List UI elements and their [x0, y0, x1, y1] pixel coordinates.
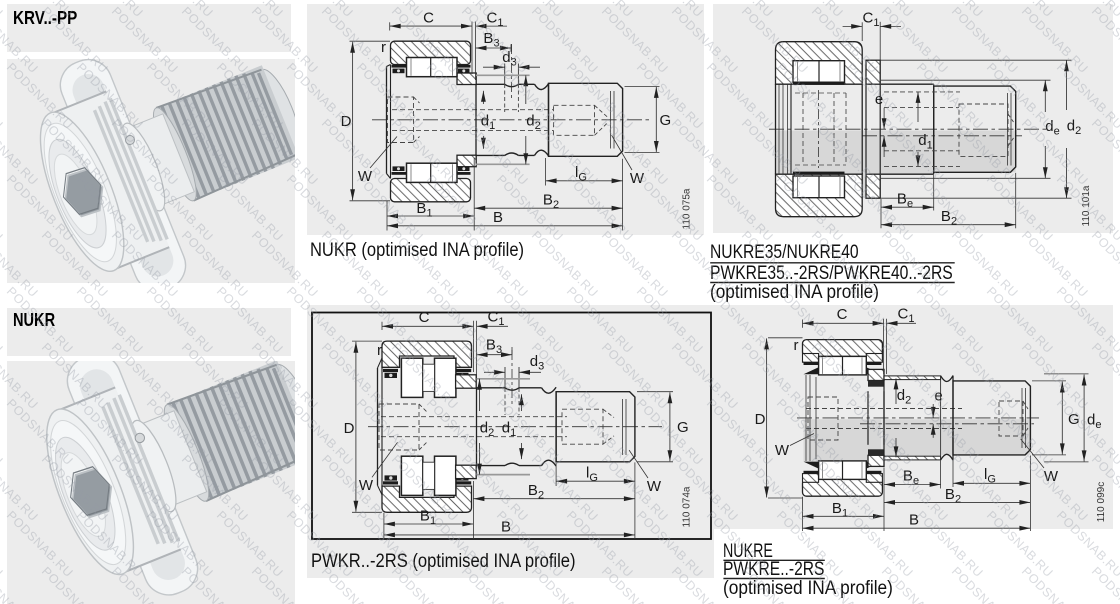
svg-text:de: de: [1087, 412, 1101, 432]
svg-text:r: r: [377, 342, 382, 359]
svg-text:C: C: [423, 10, 434, 27]
svg-text:r: r: [794, 337, 799, 354]
svg-text:B2: B2: [941, 208, 957, 228]
svg-text:G: G: [1068, 411, 1080, 428]
svg-text:e: e: [934, 388, 942, 405]
svg-text:d2: d2: [897, 387, 911, 407]
svg-text:r: r: [381, 39, 386, 56]
svg-text:110 074a: 110 074a: [682, 486, 693, 527]
svg-text:C1: C1: [863, 10, 880, 30]
svg-text:C: C: [837, 306, 848, 323]
svg-text:110 075a: 110 075a: [682, 188, 693, 229]
svg-text:d3: d3: [502, 49, 516, 69]
svg-text:B1: B1: [416, 200, 432, 220]
svg-text:Be: Be: [897, 191, 913, 211]
svg-text:B2: B2: [528, 482, 544, 502]
svg-text:C1: C1: [898, 306, 915, 326]
svg-text:d2: d2: [526, 112, 540, 131]
svg-text:d3: d3: [530, 353, 544, 373]
svg-text:W: W: [359, 477, 374, 494]
svg-text:d2: d2: [480, 420, 494, 440]
svg-text:G: G: [660, 112, 672, 129]
svg-text:B: B: [493, 209, 503, 226]
svg-text:D: D: [755, 411, 766, 428]
svg-text:W: W: [358, 168, 373, 185]
svg-text:B: B: [909, 512, 919, 529]
svg-text:B2: B2: [945, 486, 961, 506]
svg-text:B1: B1: [832, 500, 848, 520]
svg-text:W: W: [630, 170, 645, 187]
svg-text:B: B: [501, 518, 511, 535]
svg-text:B3: B3: [486, 337, 502, 357]
svg-text:D: D: [344, 420, 355, 437]
svg-text:lG: lG: [984, 466, 996, 486]
svg-text:110 099c: 110 099c: [1096, 482, 1107, 522]
svg-text:110 101a: 110 101a: [1081, 185, 1092, 226]
svg-text:G: G: [677, 419, 689, 436]
svg-text:B2: B2: [543, 192, 559, 212]
svg-text:W: W: [1044, 468, 1059, 485]
svg-text:de: de: [1045, 118, 1059, 138]
svg-text:C: C: [419, 309, 430, 326]
svg-text:Be: Be: [903, 468, 919, 488]
svg-text:W: W: [775, 442, 790, 459]
svg-text:W: W: [647, 478, 662, 495]
svg-text:lG: lG: [586, 465, 598, 485]
svg-text:e: e: [875, 91, 883, 108]
svg-text:B3: B3: [483, 30, 499, 50]
svg-text:d2: d2: [1067, 118, 1081, 138]
svg-text:C1: C1: [488, 309, 505, 329]
svg-text:lG: lG: [575, 164, 587, 184]
svg-text:d1: d1: [502, 420, 516, 440]
svg-text:D: D: [341, 113, 352, 130]
svg-text:d1: d1: [481, 112, 495, 131]
svg-text:C1: C1: [487, 10, 504, 30]
